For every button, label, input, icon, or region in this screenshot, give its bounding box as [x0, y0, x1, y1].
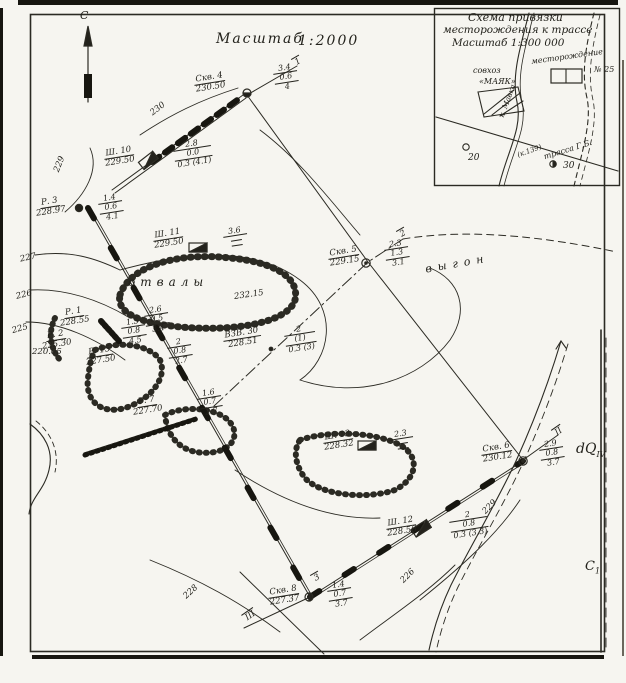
inset-title-1: Схема привязки — [468, 12, 563, 24]
point-r3-icon — [75, 204, 82, 211]
inset-km20-label: 20 — [468, 154, 479, 163]
inset-sovkhoz-label: совхоз — [473, 67, 501, 75]
fraction-sh11: 3.6 — [222, 225, 249, 248]
fraction-r15: 20.82.7 — [166, 336, 194, 367]
fraction-r2: 1.50.84.5 — [120, 316, 148, 347]
north-arrow-icon — [84, 26, 92, 102]
fraction-skv8: 1.40.73.7 — [326, 579, 354, 610]
fraction-r7: 1.60.72.7 — [196, 387, 224, 418]
geology-c1-label: С1 — [585, 560, 600, 576]
fraction-skv4: 3.40.64 — [272, 62, 300, 93]
pit-13-icon — [358, 441, 376, 450]
fraction-sh13: 2.3 — [388, 428, 415, 451]
fraction-r1: 2.60.53.4 — [143, 304, 171, 335]
pit-11-icon — [189, 243, 207, 252]
geology-dq-label: dQIV — [576, 442, 605, 459]
point-vzv30-icon — [269, 347, 273, 351]
spoil-heaps-label: отвалы — [128, 276, 208, 289]
inset-km30-label: 30 — [563, 162, 574, 171]
pit-10-icon — [138, 151, 158, 169]
fraction-skv6: 2.90.83.7 — [538, 438, 566, 469]
inset-deposit-number: № 25 — [594, 66, 614, 74]
map-scale-value: 1:2000 — [298, 34, 359, 49]
fraction-r3: 1.40.64.1 — [97, 192, 125, 223]
road-and-boundary — [29, 330, 606, 652]
fraction-vzv30: 2(1)0.3 (3) — [283, 323, 317, 355]
inset-title-2: месторождения к трассе — [443, 25, 592, 36]
map-scale-word: Масштаб — [216, 32, 304, 47]
north-label: С — [80, 10, 88, 22]
survey-map-sheet: С Масштаб 1:2000 Схема привязки месторож… — [0, 0, 626, 683]
inset-title-3: Масштаб 1:300 000 — [452, 38, 564, 49]
fraction-skv5: 2.31.33.1 — [383, 238, 411, 269]
